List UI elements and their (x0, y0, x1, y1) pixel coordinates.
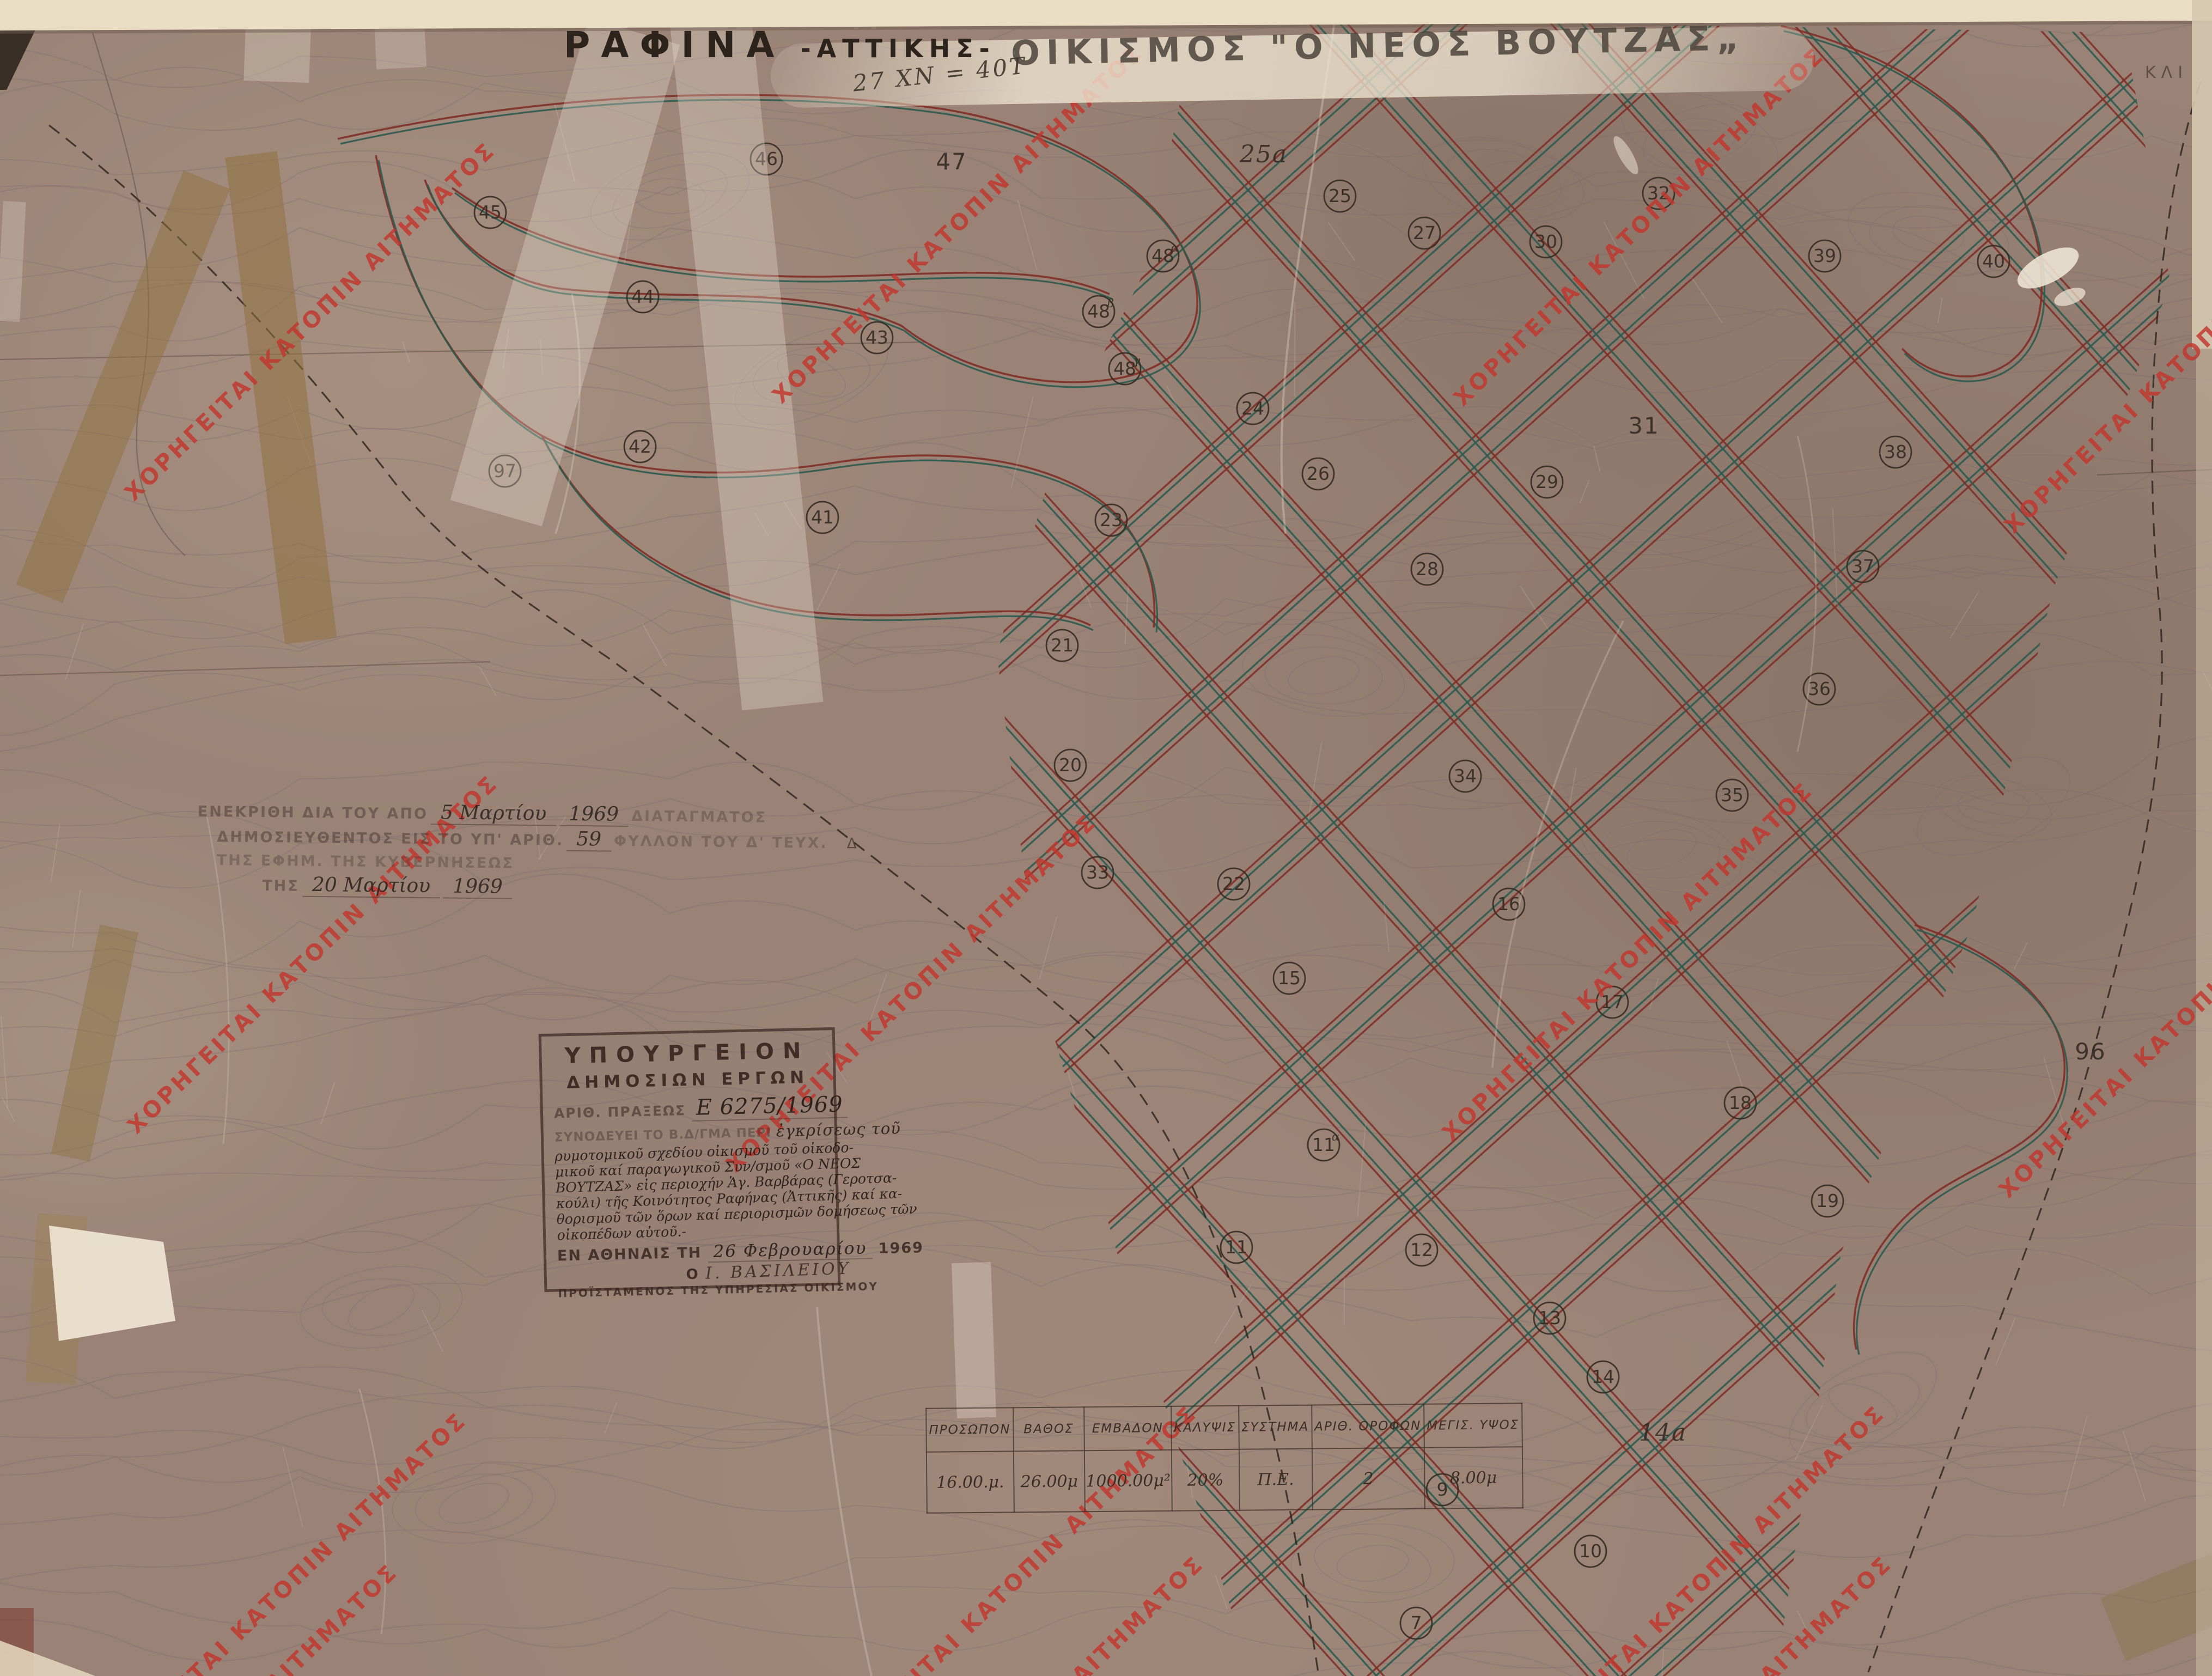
block-number-plain: 25a (1239, 141, 1288, 168)
street-line (1270, 0, 2212, 1242)
white-blotch (1610, 133, 1643, 177)
scratch-mark (817, 564, 840, 610)
subject-handwritten: ἐγκρίσεως τοῦ (776, 1119, 901, 1140)
scratch-mark (1328, 222, 1355, 261)
scratch-mark (1692, 278, 1722, 323)
contour-line (0, 77, 2212, 281)
val-depth: 26.00μ (1014, 1450, 1085, 1512)
act-label: ΑΡΙΘ. ΠΡΑΞΕΩΣ (554, 1102, 686, 1121)
handwritten-year: 1969 (443, 875, 513, 899)
scratch-mark (605, 1403, 617, 1433)
street-line (692, 16, 2212, 1401)
block-number-plain: 47 (936, 148, 967, 175)
watermark-text: ΧΟΡΗΓΕΙΤΑΙ ΚΑΤΟΠΙΝ ΑΙΤΗΜΑΤΟΣ (1999, 169, 2212, 539)
block-number: 44 (631, 286, 654, 307)
block-number: 23 (1100, 509, 1123, 531)
watermark-text: ΧΟΡΗΓΕΙΤΑΙ ΚΑΤΟΠΙΝ ΑΙΤΗΜΑΤΟΣ (90, 1407, 472, 1676)
handwritten-date: 20 Μαρτίου (302, 874, 441, 899)
block-number: 19 (1816, 1190, 1839, 1211)
contour-line (0, 973, 2212, 1078)
scratch-mark (642, 624, 666, 666)
block-number-plain: 96 (2075, 1038, 2106, 1065)
block-number: 37 (1851, 556, 1874, 577)
scratch-mark (1167, 386, 1179, 411)
scratch-mark (66, 624, 83, 679)
contour-line (0, 405, 2212, 478)
handwritten-year: 1969 (559, 803, 629, 827)
handwritten-number: 59 (566, 828, 611, 852)
block-number: 42 (629, 436, 651, 457)
block-number-sup: β (1107, 297, 1114, 310)
scratch-mark (283, 1447, 302, 1527)
block-number: 41 (811, 507, 834, 528)
contour-loop (1237, 624, 1411, 727)
col-frontage: ΠΡΟΣΩΠΟΝ (926, 1407, 1014, 1452)
scratch-mark (1357, 1123, 1366, 1217)
contour-loop (1622, 822, 1701, 877)
subject-label: ΣΥΝΟΔΕΥΕΙ ΤΟ Β.Δ/ΓΜΑ ΠΕΡΙ (554, 1126, 772, 1145)
street-line (1555, 0, 2212, 986)
torn-paper-patch (49, 1226, 175, 1341)
title-settlement: ΟΙΚΙΣΜΟΣ "Ο ΝΕΟΣ ΒΟΥΤΖΑΣ„ (1010, 18, 1745, 73)
scratch-mark (1580, 480, 1589, 503)
block-number: 35 (1721, 784, 1744, 806)
tape-piece (0, 201, 26, 322)
watermark-text: ΧΟΡΗΓΕΙΤΑΙ ΚΑΤΟΠΙΝ ΑΙΤΗΜΑΤΟΣ (1437, 777, 1818, 1146)
block-number: 38 (1884, 441, 1907, 462)
block-number: 30 (1534, 231, 1557, 252)
tape-piece (51, 924, 138, 1162)
street-line (1003, 0, 2212, 1483)
scratch-mark (1215, 1576, 1227, 1609)
scratch-mark (1996, 1318, 2015, 1364)
boundary-dashed-line (1868, 82, 2201, 1672)
ministry-title: ΥΠΟΥΡΓΕΙΟΝ (552, 1038, 822, 1069)
stamp-text: ΔΗΜΟΣΙΕΥΘΕΝΤΟΣ ΕΙΣ ΤΟ ΥΠ' ΑΡΙΘ. (217, 828, 564, 849)
contour-line (0, 1235, 2212, 1352)
street-line (1362, 760, 2212, 1676)
tape-piece (16, 170, 230, 604)
block-number: 13 (1538, 1307, 1561, 1328)
contour-line (0, 1074, 2212, 1172)
stamp-text: ΕΝΕΚΡΙΘΗ ΔΙΑ ΤΟΥ ΑΠΟ (198, 803, 429, 822)
handwritten-date: 5 Μαρτίου (431, 801, 557, 826)
block-number-plain: 31 (1628, 412, 1659, 439)
scratch-mark (1039, 917, 1057, 979)
street-line (453, 0, 1991, 1135)
scratch-mark (1, 1016, 8, 1109)
val-area: 1000.00μ² (1084, 1450, 1172, 1512)
block-number: 40 (1982, 251, 2005, 272)
block-number: 20 (1059, 754, 1082, 776)
scratch-mark (2123, 1431, 2146, 1502)
block-number-sup: α (1171, 241, 1179, 254)
scratch-mark (1833, 509, 1838, 606)
block-number: 15 (1278, 967, 1301, 989)
block-number: 48 (1113, 358, 1136, 379)
col-area: ΕΜΒΑΔΟΝ (1084, 1406, 1171, 1450)
approval-stamp: ΕΝΕΚΡΙΘΗ ΔΙΑ ΤΟΥ ΑΠΟ 5 Μαρτίου 1969 ΔΙΑΤ… (197, 800, 857, 905)
contour-loop (434, 1476, 513, 1531)
scratch-mark (1938, 297, 1942, 323)
contour-loop (1772, 1331, 1953, 1480)
watermark-text: ΧΟΡΗΓΕΙΤΑΙ ΚΑΤΟΠΙΝ ΑΙΤΗΜΑΤΟΣ (1509, 1400, 1890, 1676)
val-frontage: 16.00.μ. (927, 1451, 1014, 1513)
ministry-stamp-box: ΥΠΟΥΡΓΕΙΟΝ ΔΗΜΟΣΙΩΝ ΕΡΓΩΝ ΑΡΙΘ. ΠΡΑΞΕΩΣ … (539, 1027, 841, 1292)
ministry-subtitle: ΔΗΜΟΣΙΩΝ ΕΡΓΩΝ (553, 1067, 822, 1093)
block-number: 24 (1241, 398, 1264, 419)
street-line (1358, 757, 2212, 1676)
stamp-body-text: ρυμοτομικοῦ σχεδίου οἰκισμοῦ τοῦ οἰκοδο-… (554, 1141, 826, 1244)
block-number: 29 (1535, 471, 1558, 492)
block-number: 14 (1592, 1366, 1614, 1387)
act-number-line: ΑΡΙΘ. ΠΡΑΞΕΩΣ Ε 6275/1969 (553, 1092, 823, 1123)
contour-line (0, 531, 2212, 754)
place-year: 1969 (878, 1239, 924, 1257)
block-number-plain: 14a (1639, 1419, 1687, 1447)
contour-line (0, 1144, 2212, 1238)
block-number: 10 (1579, 1540, 1602, 1562)
street-line (677, 0, 2212, 1384)
contour-loop (1890, 211, 1966, 257)
corner-note: ΚΛΙ (2145, 63, 2188, 82)
block-number: 34 (1454, 765, 1477, 787)
block-number-sup: α (1332, 1130, 1339, 1143)
contour-loop (1285, 651, 1362, 699)
scratch-mark (1295, 302, 1295, 397)
delta-mark: Δ (831, 836, 857, 852)
block-number: 11 (1225, 1236, 1248, 1258)
stamp-text: ΤΗΣ ΕΦΗΜ. ΤΗΣ ΚΥΒΕΡΝΗΣΕΩΣ (217, 852, 514, 872)
scratch-mark (422, 1310, 443, 1351)
tape-piece (952, 1262, 996, 1418)
scratch-mark (1011, 397, 1033, 489)
street-line (1538, 0, 2212, 1002)
place-label: ΕΝ ΑΘΗΝΑΙΣ ΤΗ (557, 1245, 702, 1265)
scratch-mark (2014, 943, 2027, 969)
contour-loop (1335, 1541, 1411, 1585)
block-number: 26 (1307, 463, 1330, 484)
contour-line (0, 976, 2212, 1052)
map-title: ΡΑΦΙΝΑ -ΑΤΤΙΚΗΣ- ΟΙΚΙΣΜΟΣ "Ο ΝΕΟΣ ΒΟΥΤΖΑ… (564, 24, 1745, 66)
block-number: 43 (866, 327, 888, 348)
block-number: 7 (1411, 1612, 1422, 1634)
val-system: Π.Ε. (1239, 1449, 1312, 1510)
contour-loop (412, 1467, 536, 1539)
block-number: 18 (1729, 1092, 1752, 1113)
scratch-mark (51, 824, 60, 882)
contour-loop (1263, 644, 1384, 706)
contour-loop (322, 1278, 441, 1337)
table-header-row: ΠΡΟΣΩΠΟΝ ΒΑΘΟΣ ΕΜΒΑΔΟΝ ΚΑΛΥΨΙΣ ΣΥΣΤΗΜΑ Α… (926, 1403, 1522, 1452)
contour-loop (295, 1256, 468, 1358)
contour-loop (1903, 737, 2085, 875)
scratch-mark (1950, 592, 1979, 638)
block-number: 27 (1413, 222, 1436, 243)
col-height: ΜΕΓΙΣ. ΥΨΟΣ (1424, 1403, 1522, 1448)
crease-line (817, 1307, 872, 1676)
stamp-text: ΦΥΛΛΟΝ ΤΟΥ Δ' ΤΕΥΧ. (614, 833, 828, 852)
col-depth: ΒΑΘΟΣ (1013, 1407, 1084, 1451)
scratch-mark (2, 1097, 15, 1122)
stamp-text: ΔΙΑΤΑΓΜΑΤΟΣ (631, 808, 767, 826)
val-coverage: 20% (1171, 1449, 1239, 1511)
scanned-map-sheet: 45464725a252730323940444348α48β48γ243138… (0, 0, 2212, 1676)
col-floors: ΑΡΙΘ. ΟΡΟΦΩΝ (1312, 1404, 1424, 1449)
street-line (449, 0, 1987, 1131)
right-edge-strip (2192, 0, 2212, 349)
stamp-text: ΤΗΣ (262, 877, 300, 895)
block-number: 21 (1051, 635, 1074, 656)
block-number: 45 (479, 202, 502, 223)
corner-paper-sliver (0, 1641, 95, 1676)
block-number: 33 (1086, 862, 1109, 883)
block-number: 22 (1222, 873, 1245, 894)
block-number: 36 (1808, 678, 1831, 699)
block-number-sup: γ (1134, 354, 1141, 367)
block-number: 25 (1329, 185, 1351, 206)
act-value: Ε 6275/1969 (691, 1092, 848, 1121)
scratch-mark (1727, 1040, 1742, 1086)
col-coverage: ΚΑΛΥΨΙΣ (1171, 1406, 1239, 1450)
block-number: 48 (1087, 301, 1110, 322)
val-height: 8.00μ (1424, 1447, 1523, 1509)
block-number: 28 (1416, 558, 1439, 580)
building-terms-table: ΠΡΟΣΩΠΟΝ ΒΑΘΟΣ ΕΜΒΑΔΟΝ ΚΑΛΥΨΙΣ ΣΥΣΤΗΜΑ Α… (925, 1403, 1523, 1514)
tape-piece (2100, 1544, 2212, 1661)
pencil-line (0, 662, 490, 675)
street-curve-teal (1857, 930, 2068, 1355)
block-number: 12 (1410, 1239, 1433, 1260)
title-place: ΡΑΦΙΝΑ (564, 24, 785, 66)
table-value-row: 16.00.μ. 26.00μ 1000.00μ² 20% Π.Ε. 2 8.0… (927, 1447, 1523, 1513)
contour-line (0, 1194, 2212, 1291)
scratch-mark (321, 1082, 334, 1124)
block-number: 39 (1813, 245, 1836, 266)
contour-loop (1310, 1526, 1435, 1601)
val-floors: 2 (1312, 1448, 1425, 1510)
scratch-mark (72, 889, 81, 948)
col-system: ΣΥΣΤΗΜΑ (1239, 1405, 1312, 1449)
